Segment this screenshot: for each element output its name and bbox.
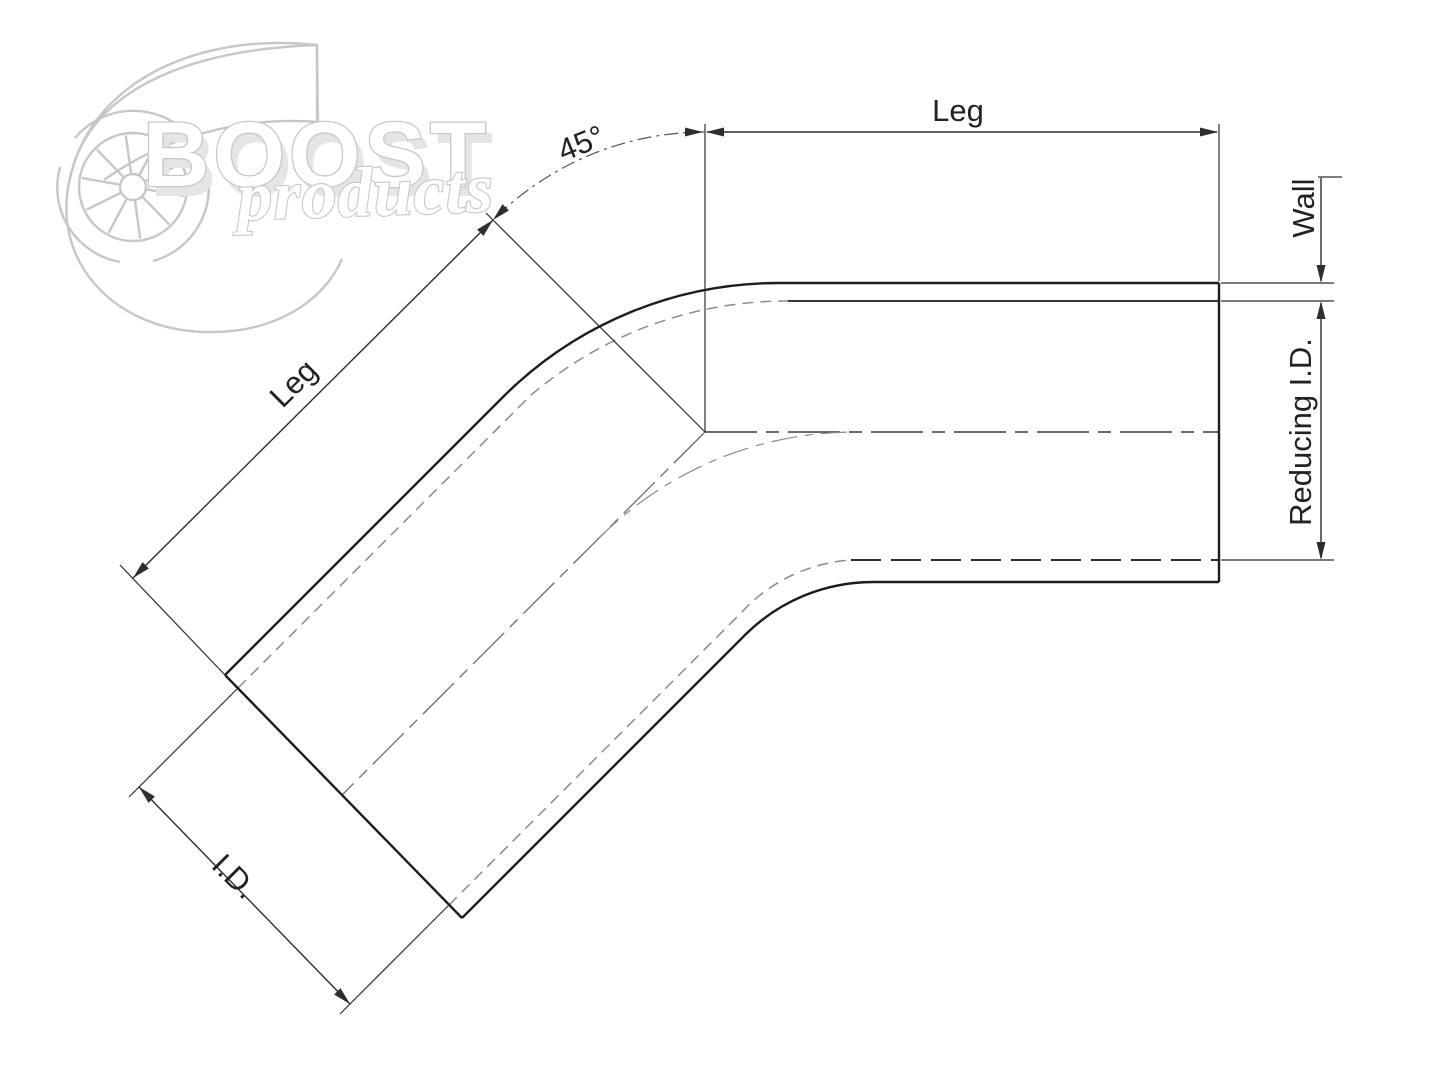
centerline-diagonal	[343, 432, 705, 794]
arrowhead	[706, 128, 724, 137]
dimension-reducing-id: Reducing I.D.	[1283, 301, 1326, 560]
dimension-top-leg: Leg	[706, 93, 1218, 137]
arrowhead	[1317, 301, 1326, 319]
watermark-logo: BOOST BOOST products	[57, 43, 497, 332]
outer-wall-top	[225, 283, 1219, 675]
pipe-outline	[225, 283, 1219, 918]
arrowhead	[685, 128, 703, 137]
dimension-diagonal-leg: Leg	[133, 220, 493, 578]
brand-subtext: products	[231, 150, 495, 236]
arrowhead	[1317, 542, 1326, 560]
label-wall: Wall	[1286, 178, 1321, 237]
id-extension-upper	[129, 688, 238, 797]
outer-wall-bottom	[462, 582, 1219, 918]
arrowhead	[1200, 128, 1218, 137]
apex-45-ray	[486, 213, 705, 432]
end-plane-extension	[120, 565, 225, 675]
label-top-leg: Leg	[932, 93, 984, 128]
dimension-angle-45: 45°	[493, 118, 705, 220]
arrowhead	[1317, 265, 1326, 283]
drawing-canvas: BOOST BOOST products	[0, 0, 1445, 1084]
extension-lines	[120, 124, 1342, 1014]
dimension-inner-diameter: I.D.	[139, 787, 350, 1004]
id-extension-lower	[340, 905, 449, 1014]
centerlines	[343, 432, 1219, 794]
reducer-elbow-45-diagram: BOOST BOOST products	[0, 0, 1445, 1084]
label-inner-diameter: I.D.	[205, 847, 264, 906]
label-diagonal-leg: Leg	[263, 353, 324, 414]
centerline-bend-arc	[599, 432, 855, 538]
label-reducing-id: Reducing I.D.	[1283, 338, 1318, 526]
inner-wall-bottom-bend	[449, 560, 851, 905]
label-angle: 45°	[553, 118, 610, 168]
hidden-inner-diameter-lines	[238, 301, 1219, 905]
dimension-wall: Wall	[1286, 178, 1326, 283]
